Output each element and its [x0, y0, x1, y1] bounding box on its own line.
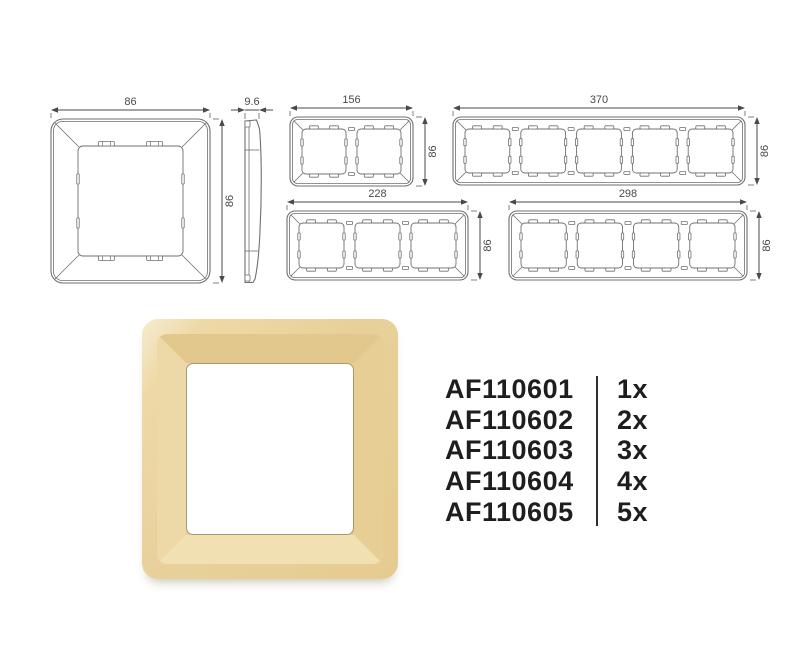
list-item: AF110601 1x: [445, 374, 705, 405]
dimension-label: 228: [368, 188, 386, 200]
dimension-label: 86: [124, 96, 136, 108]
product-code: AF110605: [445, 497, 617, 528]
product-code: AF110604: [445, 466, 617, 497]
gang-count: 1x: [617, 374, 648, 405]
product-code: AF110602: [445, 405, 617, 436]
front-view-5gang: 37086: [447, 91, 791, 193]
list-item: AF110605 5x: [445, 497, 705, 528]
front-view-2gang: 15686: [284, 91, 459, 194]
drawing-front-2gang: 15686: [284, 91, 459, 194]
gang-count: 2x: [617, 405, 648, 436]
product-photo-gold-frame: [142, 319, 398, 579]
dimension-label: 86: [759, 145, 771, 157]
list-item: AF110603 3x: [445, 435, 705, 466]
drawing-front-1gang: 8686: [45, 93, 256, 291]
datasheet-page: 8686 9.6 15686 37086 22886 29886 AF11060…: [0, 0, 800, 655]
frame-opening: [186, 363, 354, 535]
drawing-front-3gang: 22886: [281, 185, 514, 288]
drawing-front-4gang: 29886: [503, 185, 793, 288]
list-item: AF110604 4x: [445, 466, 705, 497]
dimension-label: 86: [427, 145, 439, 157]
dimension-label: 298: [619, 188, 637, 200]
front-view-1gang: 8686: [45, 93, 256, 291]
list-item: AF110602 2x: [445, 405, 705, 436]
dimension-label: 86: [761, 239, 773, 251]
list-divider: [596, 376, 598, 526]
product-code-list: AF110601 1x AF110602 2x AF110603 3x AF11…: [445, 374, 705, 527]
front-view-4gang: 29886: [503, 185, 793, 288]
product-code: AF110601: [445, 374, 617, 405]
drawing-front-5gang: 37086: [447, 91, 791, 193]
dimension-label: 370: [590, 94, 608, 106]
product-code: AF110603: [445, 435, 617, 466]
dimension-label: 9.6: [244, 96, 259, 108]
dimension-label: 86: [482, 239, 494, 251]
dimension-label: 156: [342, 94, 360, 106]
front-view-3gang: 22886: [281, 185, 514, 288]
gang-count: 5x: [617, 497, 648, 528]
gang-count: 3x: [617, 435, 648, 466]
gang-count: 4x: [617, 466, 648, 497]
